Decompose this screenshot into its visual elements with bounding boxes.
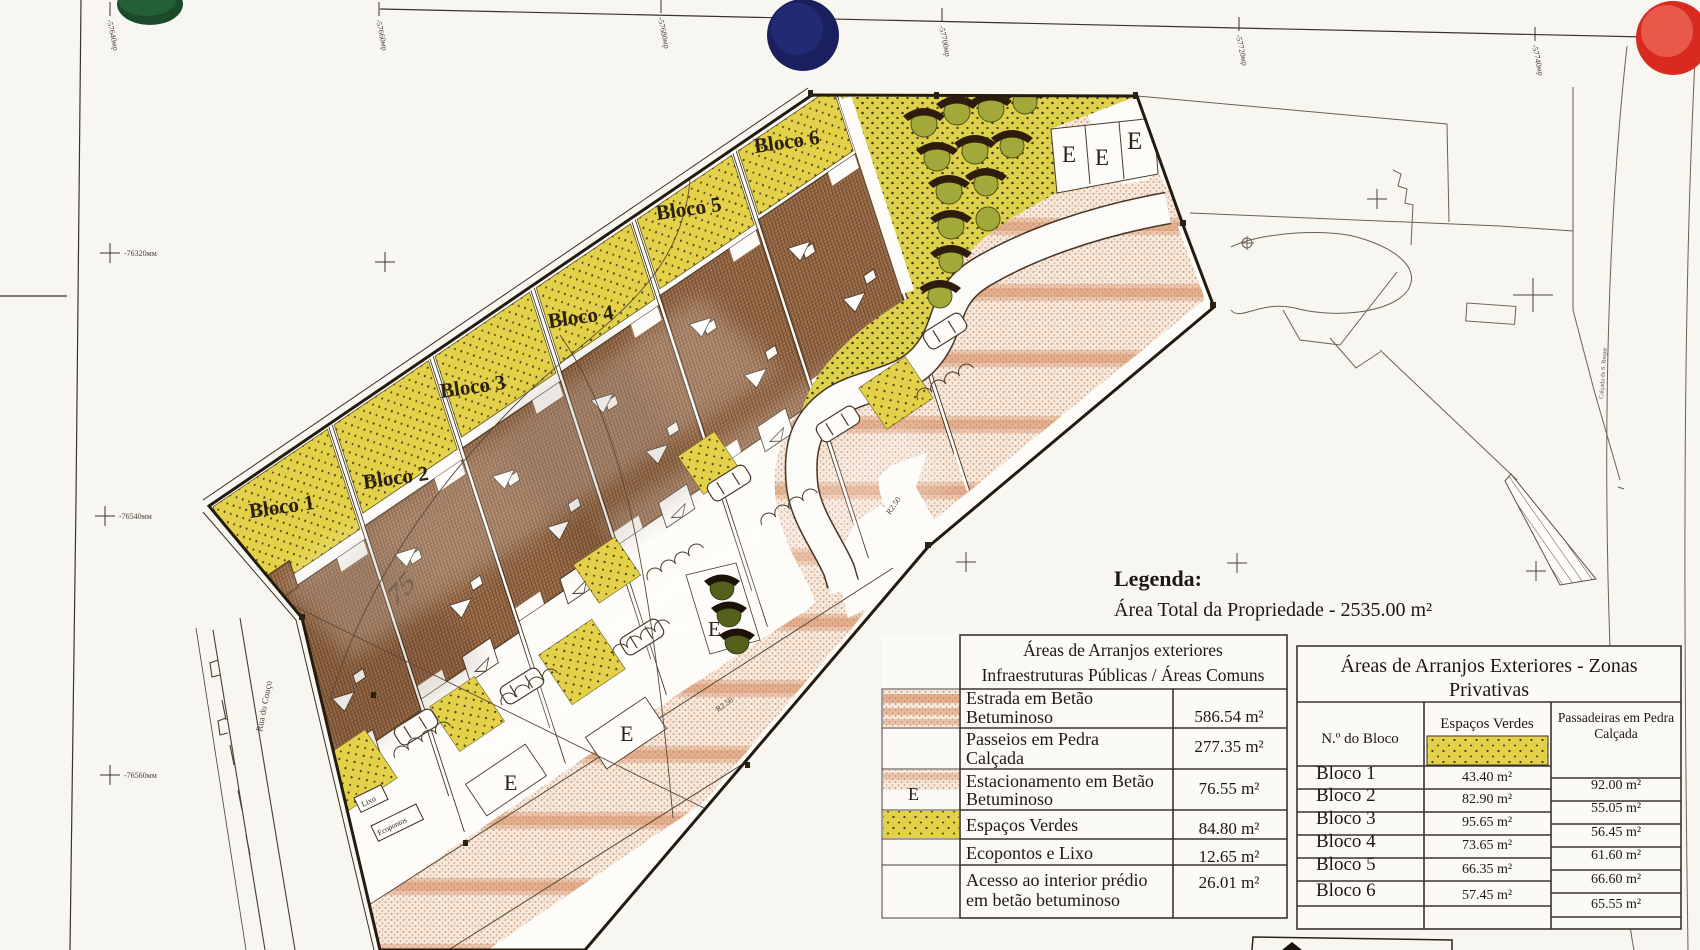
svg-text:E: E — [1095, 145, 1109, 170]
svg-text:73.65 m²: 73.65 m² — [1462, 838, 1512, 853]
svg-text:Betuminoso: Betuminoso — [966, 789, 1053, 809]
svg-text:56.45 m²: 56.45 m² — [1591, 825, 1641, 840]
svg-text:Estrada em Betão: Estrada em Betão — [966, 688, 1093, 708]
svg-text:-76540мм: -76540мм — [119, 512, 152, 521]
svg-text:Calçada: Calçada — [1594, 726, 1637, 741]
svg-text:Bloco 3: Bloco 3 — [1316, 808, 1376, 829]
svg-text:55.05 m²: 55.05 m² — [1591, 801, 1641, 816]
svg-text:N.º do Bloco: N.º do Bloco — [1321, 731, 1399, 747]
svg-text:57.45 m²: 57.45 m² — [1462, 888, 1512, 903]
svg-text:65.55 m²: 65.55 m² — [1591, 897, 1641, 912]
svg-text:Acesso ao interior prédio: Acesso ao interior prédio — [966, 870, 1147, 890]
svg-text:82.90 m²: 82.90 m² — [1462, 792, 1512, 807]
svg-text:Espaços Verdes: Espaços Verdes — [1440, 716, 1534, 732]
svg-text:66.60 m²: 66.60 m² — [1591, 872, 1641, 887]
svg-text:E: E — [1127, 128, 1142, 155]
svg-text:em betão betuminoso: em betão betuminoso — [966, 890, 1120, 910]
svg-text:Áreas de Arranjos exteriores: Áreas de Arranjos exteriores — [1023, 640, 1223, 660]
svg-text:-76320мм: -76320мм — [124, 249, 157, 258]
svg-text:Bloco 6: Bloco 6 — [1316, 880, 1376, 901]
svg-text:66.35 m²: 66.35 m² — [1462, 862, 1512, 877]
svg-text:84.80 m²: 84.80 m² — [1199, 819, 1260, 838]
svg-text:-76560мм: -76560мм — [124, 771, 157, 780]
svg-text:Áreas de Arranjos Exteriores -: Áreas de Arranjos Exteriores - Zonas — [1340, 654, 1637, 677]
svg-text:E: E — [708, 617, 721, 641]
svg-text:Infraestruturas Públicas / Áre: Infraestruturas Públicas / Áreas Comuns — [982, 665, 1265, 685]
svg-text:Espaços Verdes: Espaços Verdes — [966, 815, 1078, 835]
svg-text:Bloco 4: Bloco 4 — [1316, 831, 1376, 852]
svg-text:Ecopontos e Lixo: Ecopontos e Lixo — [966, 843, 1093, 863]
svg-text:E: E — [504, 770, 517, 795]
svg-text:Área Total da Propriedade - 2: Área Total da Propriedade - 2535.00 m² — [1114, 598, 1432, 621]
svg-text:277.35 m²: 277.35 m² — [1194, 737, 1263, 756]
svg-text:Bloco 5: Bloco 5 — [1316, 854, 1376, 875]
svg-text:Privativas: Privativas — [1449, 679, 1529, 701]
svg-text:Bloco 1: Bloco 1 — [1316, 763, 1376, 784]
svg-text:Passeios em Pedra: Passeios em Pedra — [966, 729, 1099, 749]
svg-text:Betuminoso: Betuminoso — [966, 707, 1053, 727]
svg-text:Calçada: Calçada — [966, 748, 1024, 768]
svg-text:586.54 m²: 586.54 m² — [1194, 707, 1263, 726]
svg-text:12.65 m²: 12.65 m² — [1199, 847, 1260, 866]
svg-text:61.60 m²: 61.60 m² — [1591, 848, 1641, 863]
svg-text:92.00 m²: 92.00 m² — [1591, 778, 1641, 793]
svg-text:26.01 m²: 26.01 m² — [1199, 873, 1260, 892]
svg-text:95.65 m²: 95.65 m² — [1462, 815, 1512, 830]
svg-text:76.55 m²: 76.55 m² — [1199, 779, 1260, 798]
svg-text:Passadeiras em Pedra: Passadeiras em Pedra — [1558, 710, 1674, 725]
svg-text:E: E — [1062, 142, 1076, 167]
svg-text:Bloco 2: Bloco 2 — [1316, 785, 1376, 806]
svg-text:E: E — [908, 784, 919, 804]
svg-text:Estacionamento em Betão: Estacionamento em Betão — [966, 771, 1154, 791]
svg-text:E: E — [620, 721, 633, 746]
svg-text:43.40 m²: 43.40 m² — [1462, 770, 1512, 785]
svg-text:Legenda:: Legenda: — [1114, 566, 1202, 591]
